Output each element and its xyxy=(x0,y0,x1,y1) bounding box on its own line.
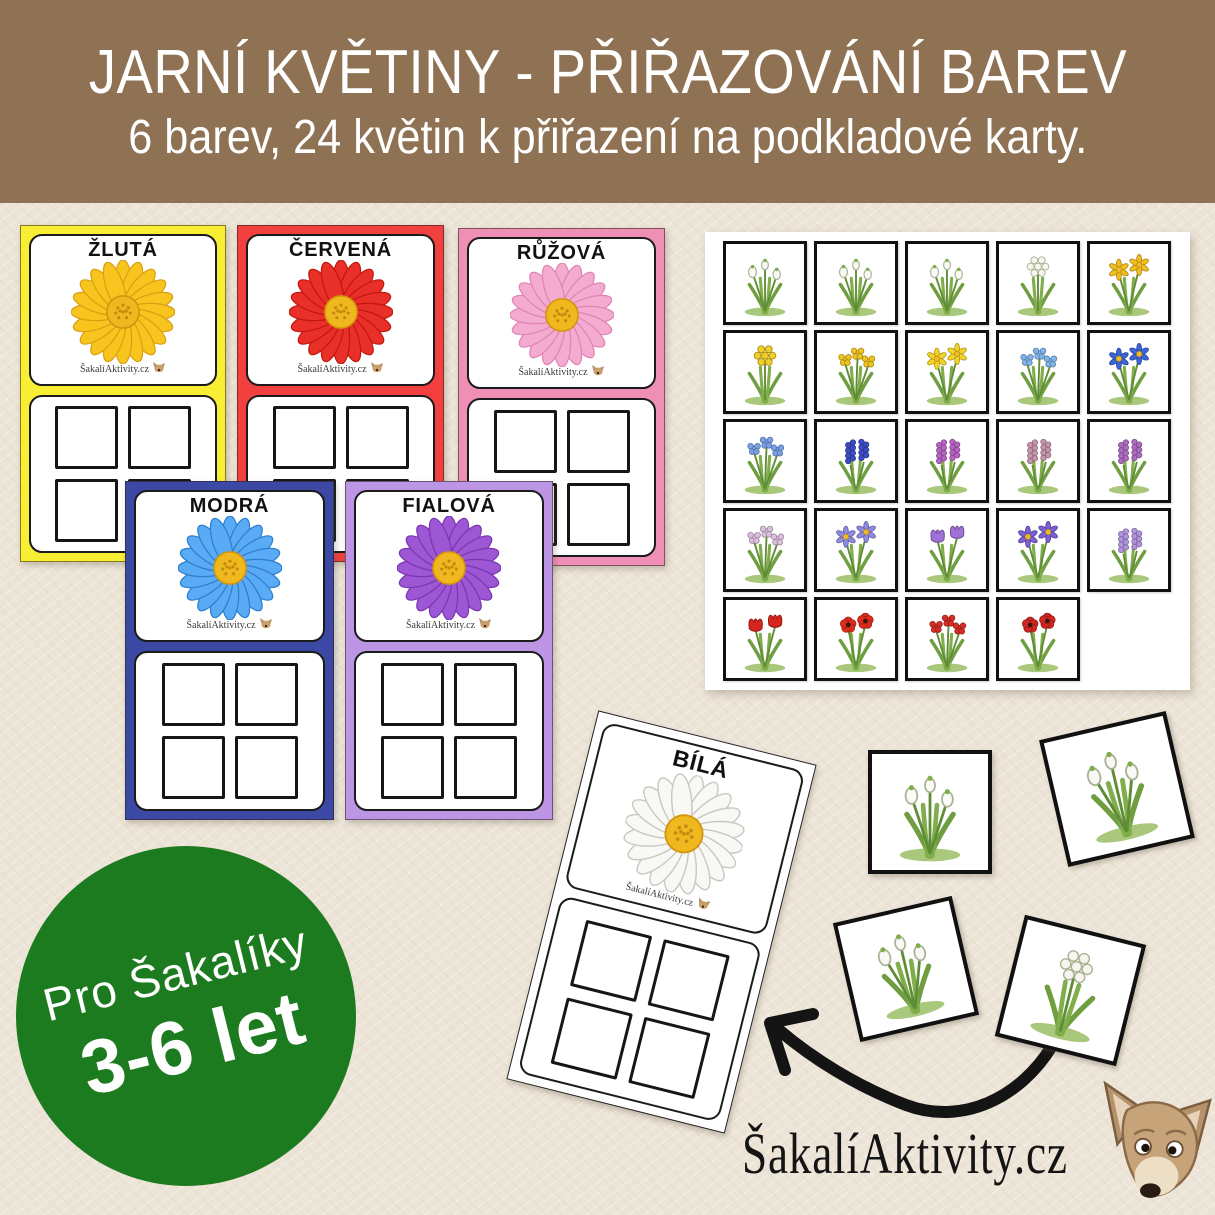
page-title: JARNÍ KVĚTINY - PŘIŘAZOVÁNÍ BAREV xyxy=(88,40,1126,105)
jackal-mini-icon xyxy=(152,360,166,378)
card-title: ŽLUTÁ xyxy=(88,239,158,262)
card-watermark: ŠakalíAktivity.cz xyxy=(406,616,492,634)
empty-slot xyxy=(55,479,118,542)
empty-slot xyxy=(567,483,630,546)
modra-daisy xyxy=(178,516,282,620)
flower-tile-tulips xyxy=(723,597,807,681)
loose-tile-lily-of-the-valley xyxy=(868,750,992,874)
cervena-daisy xyxy=(289,260,393,364)
flower-tile-hyacinth xyxy=(1087,508,1171,592)
jackal-mini-icon xyxy=(259,617,273,629)
anemones-icon xyxy=(999,600,1077,678)
siberian-squill-icon xyxy=(726,422,804,500)
jackal-mini-icon xyxy=(695,896,711,911)
jackal-mini-icon xyxy=(591,364,605,376)
empty-slot xyxy=(55,406,118,469)
card-header-panel: MODRÁ ŠakalíAktivity.cz xyxy=(134,490,325,642)
purple-daisy-icon xyxy=(397,516,501,620)
flower-tile-hepatica xyxy=(814,508,898,592)
flower-tile-wild-garlic xyxy=(996,241,1080,325)
card-header-panel: ČERVENÁ ŠakalíAktivity.cz xyxy=(246,234,435,386)
spring-snowflake-icon xyxy=(1044,716,1190,862)
card-title: ČERVENÁ xyxy=(289,239,392,262)
forget-me-not-icon xyxy=(999,333,1077,411)
ruzova-daisy xyxy=(510,263,614,367)
early-purple-orchid-icon xyxy=(1090,422,1168,500)
color-card-modra: MODRÁ ŠakalíAktivity.cz xyxy=(125,481,334,820)
flower-tile-cuckoo-flower xyxy=(723,508,807,592)
empty-slot xyxy=(381,736,444,799)
butterbur-icon xyxy=(999,422,1077,500)
wild-garlic-icon xyxy=(1000,920,1142,1062)
snowdrop-icon xyxy=(817,244,895,322)
empty-slot xyxy=(569,919,651,1001)
zluta-daisy xyxy=(71,260,175,364)
brand-text: ŠakalíAktivity.cz xyxy=(742,1120,1068,1187)
card-title: MODRÁ xyxy=(190,495,270,518)
lily-of-the-valley-icon xyxy=(872,754,988,870)
flower-tile-red-primrose xyxy=(905,597,989,681)
card-drop-grid xyxy=(354,651,544,811)
empty-slot xyxy=(235,663,298,726)
empty-slot xyxy=(494,410,557,473)
flower-tile-coltsfoot xyxy=(814,330,898,414)
jackal-mini-icon xyxy=(370,361,384,373)
empty-slot xyxy=(162,736,225,799)
jackal-mini-icon xyxy=(478,617,492,629)
card-title: FIALOVÁ xyxy=(402,495,495,518)
jackal-mini-icon xyxy=(259,616,273,634)
empty-slot xyxy=(128,406,191,469)
empty-slot xyxy=(454,736,517,799)
loose-tile-spring-snowflake xyxy=(1039,711,1195,867)
age-badge-text: Pro Šakalíky 3-6 let xyxy=(38,914,335,1118)
header-banner: JARNÍ KVĚTINY - PŘIŘAZOVÁNÍ BAREV 6 bare… xyxy=(0,0,1215,203)
hyacinth-icon xyxy=(1090,511,1168,589)
loose-tile-snowdrop xyxy=(833,896,979,1042)
spring-gentian-icon xyxy=(1090,333,1168,411)
flower-tile-poppy xyxy=(814,597,898,681)
empty-slot xyxy=(162,663,225,726)
lesser-celandine-icon xyxy=(908,333,986,411)
crocus-icon xyxy=(908,511,986,589)
flower-tile-butterbur xyxy=(996,419,1080,503)
card-header-panel: ŽLUTÁ ŠakalíAktivity.cz xyxy=(29,234,217,386)
cowslip-icon xyxy=(726,333,804,411)
age-badge: Pro Šakalíky 3-6 let xyxy=(16,846,356,1186)
empty-slot xyxy=(273,406,336,469)
empty-slot xyxy=(346,406,409,469)
empty-slot xyxy=(567,410,630,473)
flower-tile-sheet xyxy=(705,232,1190,690)
empty-slot xyxy=(454,663,517,726)
color-card-fialova: FIALOVÁ ŠakalíAktivity.cz xyxy=(345,481,553,820)
hepatica-icon xyxy=(817,511,895,589)
tulips-icon xyxy=(726,600,804,678)
jackal-mini-icon xyxy=(152,361,166,373)
flower-tile-purple-dead-nettle xyxy=(905,419,989,503)
flower-tile-crocus xyxy=(905,508,989,592)
jackal-mini-icon xyxy=(370,360,384,378)
jackal-mascot-icon xyxy=(1093,1076,1215,1215)
grape-hyacinth-icon xyxy=(817,422,895,500)
empty-slot xyxy=(550,997,632,1079)
loose-tile-wild-garlic xyxy=(995,915,1147,1067)
flower-tile-siberian-squill xyxy=(723,419,807,503)
flower-tile-cowslip xyxy=(723,330,807,414)
card-title: RŮŽOVÁ xyxy=(517,242,606,265)
fialova-daisy xyxy=(397,516,501,620)
card-header-panel: FIALOVÁ ŠakalíAktivity.cz xyxy=(354,490,544,642)
card-watermark: ŠakalíAktivity.cz xyxy=(518,363,604,381)
card-watermark: ŠakalíAktivity.cz xyxy=(186,616,272,634)
card-drop-grid xyxy=(134,651,325,811)
flower-tile-violet xyxy=(996,508,1080,592)
flower-tile-anemones xyxy=(996,597,1080,681)
empty-slot xyxy=(235,736,298,799)
flower-tile-forget-me-not xyxy=(996,330,1080,414)
daffodil-icon xyxy=(1090,244,1168,322)
cuckoo-flower-icon xyxy=(726,511,804,589)
yellow-daisy-icon xyxy=(71,260,175,364)
pink-daisy-icon xyxy=(510,263,614,367)
flower-tile-spring-snowflake xyxy=(723,241,807,325)
card-header-panel: RŮŽOVÁ ŠakalíAktivity.cz xyxy=(467,237,656,389)
snowdrop-icon xyxy=(838,901,975,1038)
jackal-mini-icon xyxy=(694,895,712,916)
spring-snowflake-icon xyxy=(726,244,804,322)
red-daisy-icon xyxy=(289,260,393,364)
jackal-mini-icon xyxy=(591,363,605,381)
wild-garlic-icon xyxy=(999,244,1077,322)
flower-tile-grape-hyacinth xyxy=(814,419,898,503)
poppy-icon xyxy=(817,600,895,678)
flower-tile-snowdrop xyxy=(814,241,898,325)
flower-tile-early-purple-orchid xyxy=(1087,419,1171,503)
flower-tile-spring-gentian xyxy=(1087,330,1171,414)
card-drop-grid xyxy=(517,895,762,1123)
empty-slot xyxy=(647,938,729,1020)
empty-slot xyxy=(628,1016,710,1098)
coltsfoot-icon xyxy=(817,333,895,411)
jackal-mini-icon xyxy=(478,616,492,634)
card-watermark: ŠakalíAktivity.cz xyxy=(80,360,166,378)
red-primrose-icon xyxy=(908,600,986,678)
purple-dead-nettle-icon xyxy=(908,422,986,500)
violet-icon xyxy=(999,511,1077,589)
page-subtitle: 6 barev, 24 květin k přiřazení na podkla… xyxy=(128,113,1087,163)
blue-daisy-icon xyxy=(178,516,282,620)
lily-of-the-valley-icon xyxy=(908,244,986,322)
card-watermark: ŠakalíAktivity.cz xyxy=(297,360,383,378)
flower-tile-lesser-celandine xyxy=(905,330,989,414)
flower-tile-lily-of-the-valley xyxy=(905,241,989,325)
empty-slot xyxy=(381,663,444,726)
flower-tile-daffodil xyxy=(1087,241,1171,325)
